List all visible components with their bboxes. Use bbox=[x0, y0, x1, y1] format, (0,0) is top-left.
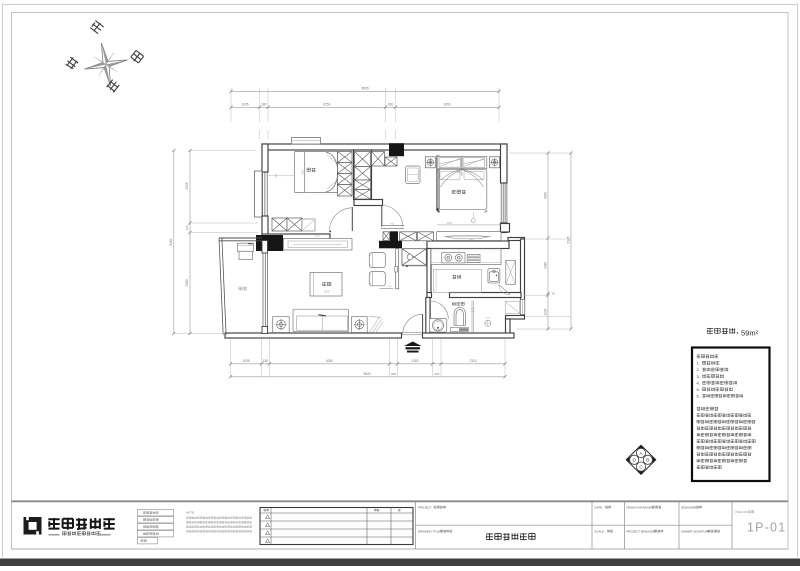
svg-text:2115: 2115 bbox=[470, 359, 477, 363]
svg-text:DESIGN MANAGER: DESIGN MANAGER bbox=[627, 505, 654, 509]
svg-text:1035: 1035 bbox=[241, 102, 248, 106]
svg-text:PROJECT: PROJECT bbox=[418, 505, 432, 509]
svg-text:6250: 6250 bbox=[323, 102, 330, 106]
svg-text:1.: 1. bbox=[697, 361, 700, 366]
svg-text:2100: 2100 bbox=[315, 236, 321, 238]
svg-text:180: 180 bbox=[263, 359, 269, 363]
svg-text:265: 265 bbox=[185, 225, 189, 230]
svg-text:180: 180 bbox=[261, 102, 267, 106]
svg-text:6145: 6145 bbox=[567, 236, 571, 243]
svg-text:2960: 2960 bbox=[185, 279, 189, 286]
svg-text:DESIGNER: DESIGNER bbox=[681, 505, 696, 509]
svg-text:1200: 1200 bbox=[324, 290, 330, 293]
svg-text:59m²: 59m² bbox=[741, 328, 759, 337]
svg-text:6250: 6250 bbox=[326, 359, 333, 363]
svg-text:2925: 2925 bbox=[185, 182, 189, 189]
svg-text:1985: 1985 bbox=[544, 262, 548, 269]
svg-text:5.: 5. bbox=[697, 387, 700, 392]
svg-text:SCALE: SCALE bbox=[595, 529, 605, 533]
svg-text:1260: 1260 bbox=[411, 359, 418, 363]
svg-text:6464: 6464 bbox=[169, 238, 173, 245]
svg-text:B: B bbox=[646, 458, 649, 463]
svg-text:DWG NO: DWG NO bbox=[736, 510, 749, 514]
svg-text:4.: 4. bbox=[697, 380, 700, 385]
svg-text:330: 330 bbox=[388, 102, 394, 106]
svg-text:NOTE:: NOTE: bbox=[186, 511, 195, 515]
svg-text:3040: 3040 bbox=[544, 192, 548, 199]
svg-text:1035: 1035 bbox=[242, 359, 249, 363]
svg-text:PROJECT MANAGER: PROJECT MANAGER bbox=[627, 529, 656, 533]
svg-text:1500: 1500 bbox=[457, 172, 463, 174]
svg-text:265: 265 bbox=[391, 372, 396, 376]
svg-text:3.: 3. bbox=[697, 374, 700, 379]
svg-text:225: 225 bbox=[434, 372, 439, 376]
svg-text:1P-01: 1P-01 bbox=[747, 521, 786, 535]
svg-text:2060: 2060 bbox=[443, 102, 450, 106]
svg-text:2160: 2160 bbox=[469, 239, 475, 241]
svg-text:2.: 2. bbox=[697, 367, 700, 372]
svg-text:DATE: DATE bbox=[595, 505, 603, 509]
svg-text:2810: 2810 bbox=[303, 169, 305, 175]
svg-text:1120: 1120 bbox=[544, 308, 548, 315]
svg-text:9595: 9595 bbox=[361, 86, 369, 90]
svg-text:DRAWING TITLE: DRAWING TITLE bbox=[418, 529, 441, 533]
svg-text:6.: 6. bbox=[697, 394, 700, 399]
svg-text:2745: 2745 bbox=[446, 222, 452, 225]
svg-text:OWNER SIGNATURE: OWNER SIGNATURE bbox=[681, 529, 710, 533]
svg-text:9640: 9640 bbox=[363, 372, 370, 376]
